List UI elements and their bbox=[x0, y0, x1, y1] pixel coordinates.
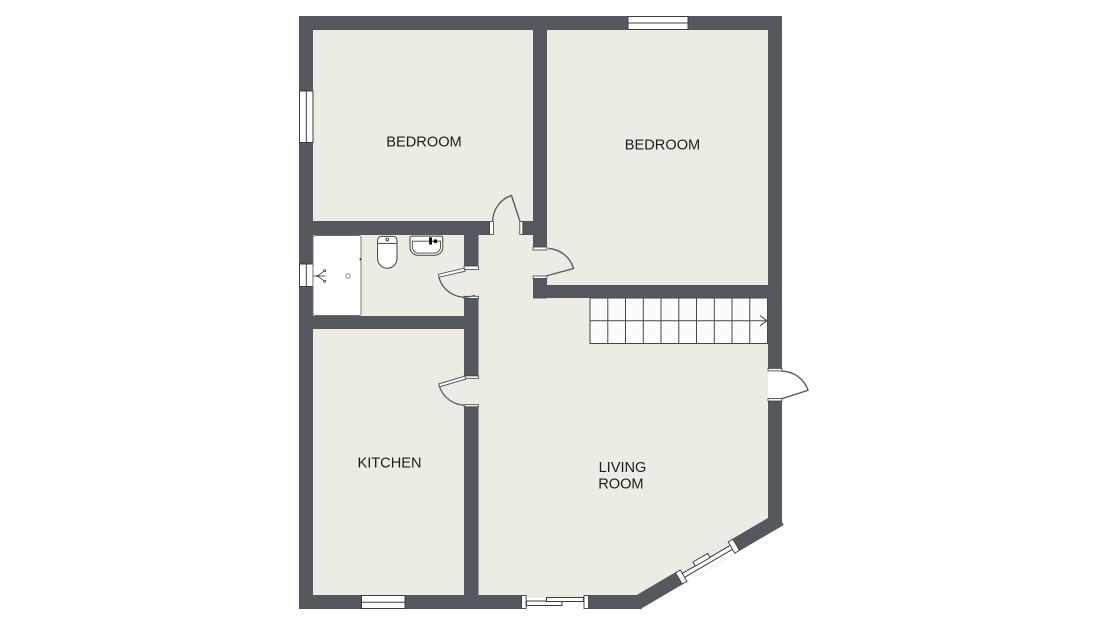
svg-text:ROOM: ROOM bbox=[598, 476, 643, 492]
svg-text:KITCHEN: KITCHEN bbox=[357, 456, 421, 472]
svg-text:BEDROOM: BEDROOM bbox=[386, 135, 461, 151]
svg-text:BEDROOM: BEDROOM bbox=[625, 138, 700, 154]
svg-text:LIVING: LIVING bbox=[599, 460, 647, 476]
